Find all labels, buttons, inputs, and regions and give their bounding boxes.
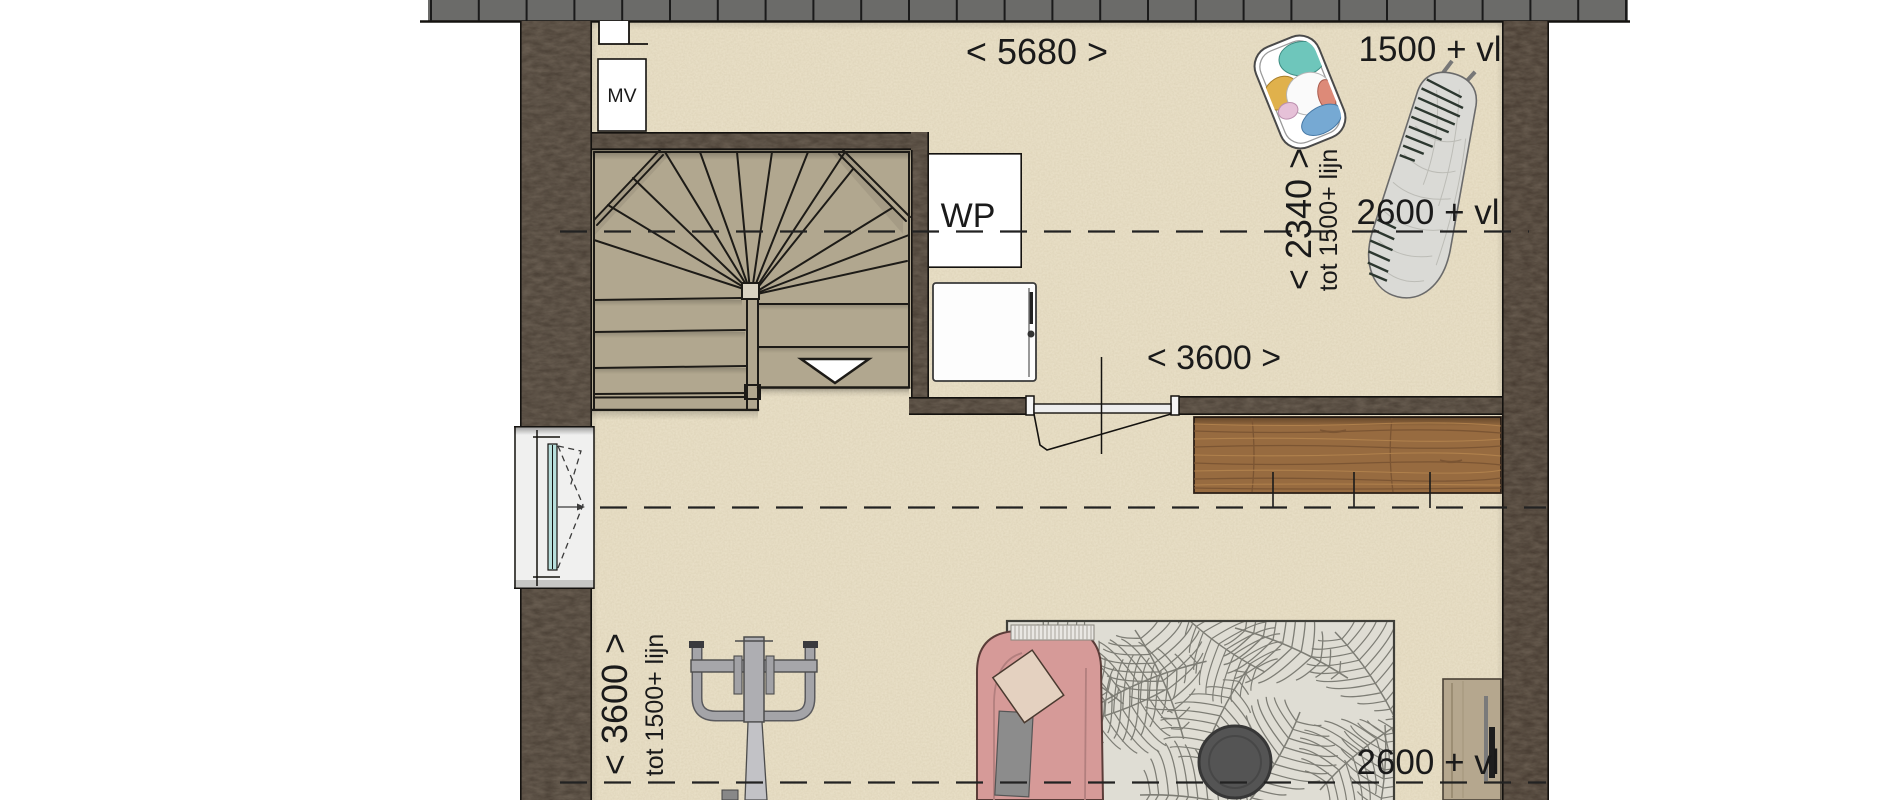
svg-text:2600 + vl: 2600 + vl (1356, 743, 1499, 782)
svg-text:2600 + vl: 2600 + vl (1356, 193, 1499, 232)
svg-text:WP: WP (941, 197, 996, 235)
svg-text:< 3600 >: < 3600 > (594, 633, 635, 775)
svg-text:< 5680 >: < 5680 > (966, 31, 1108, 72)
svg-text:tot 1500+ lijn: tot 1500+ lijn (641, 634, 669, 776)
svg-text:1500 + vl: 1500 + vl (1358, 30, 1501, 69)
svg-text:MV: MV (607, 85, 636, 107)
svg-text:< 3600 >: < 3600 > (1147, 339, 1281, 377)
svg-text:< 2340 >: < 2340 > (1278, 148, 1319, 290)
svg-text:tot 1500+ lijn: tot 1500+ lijn (1315, 149, 1343, 291)
